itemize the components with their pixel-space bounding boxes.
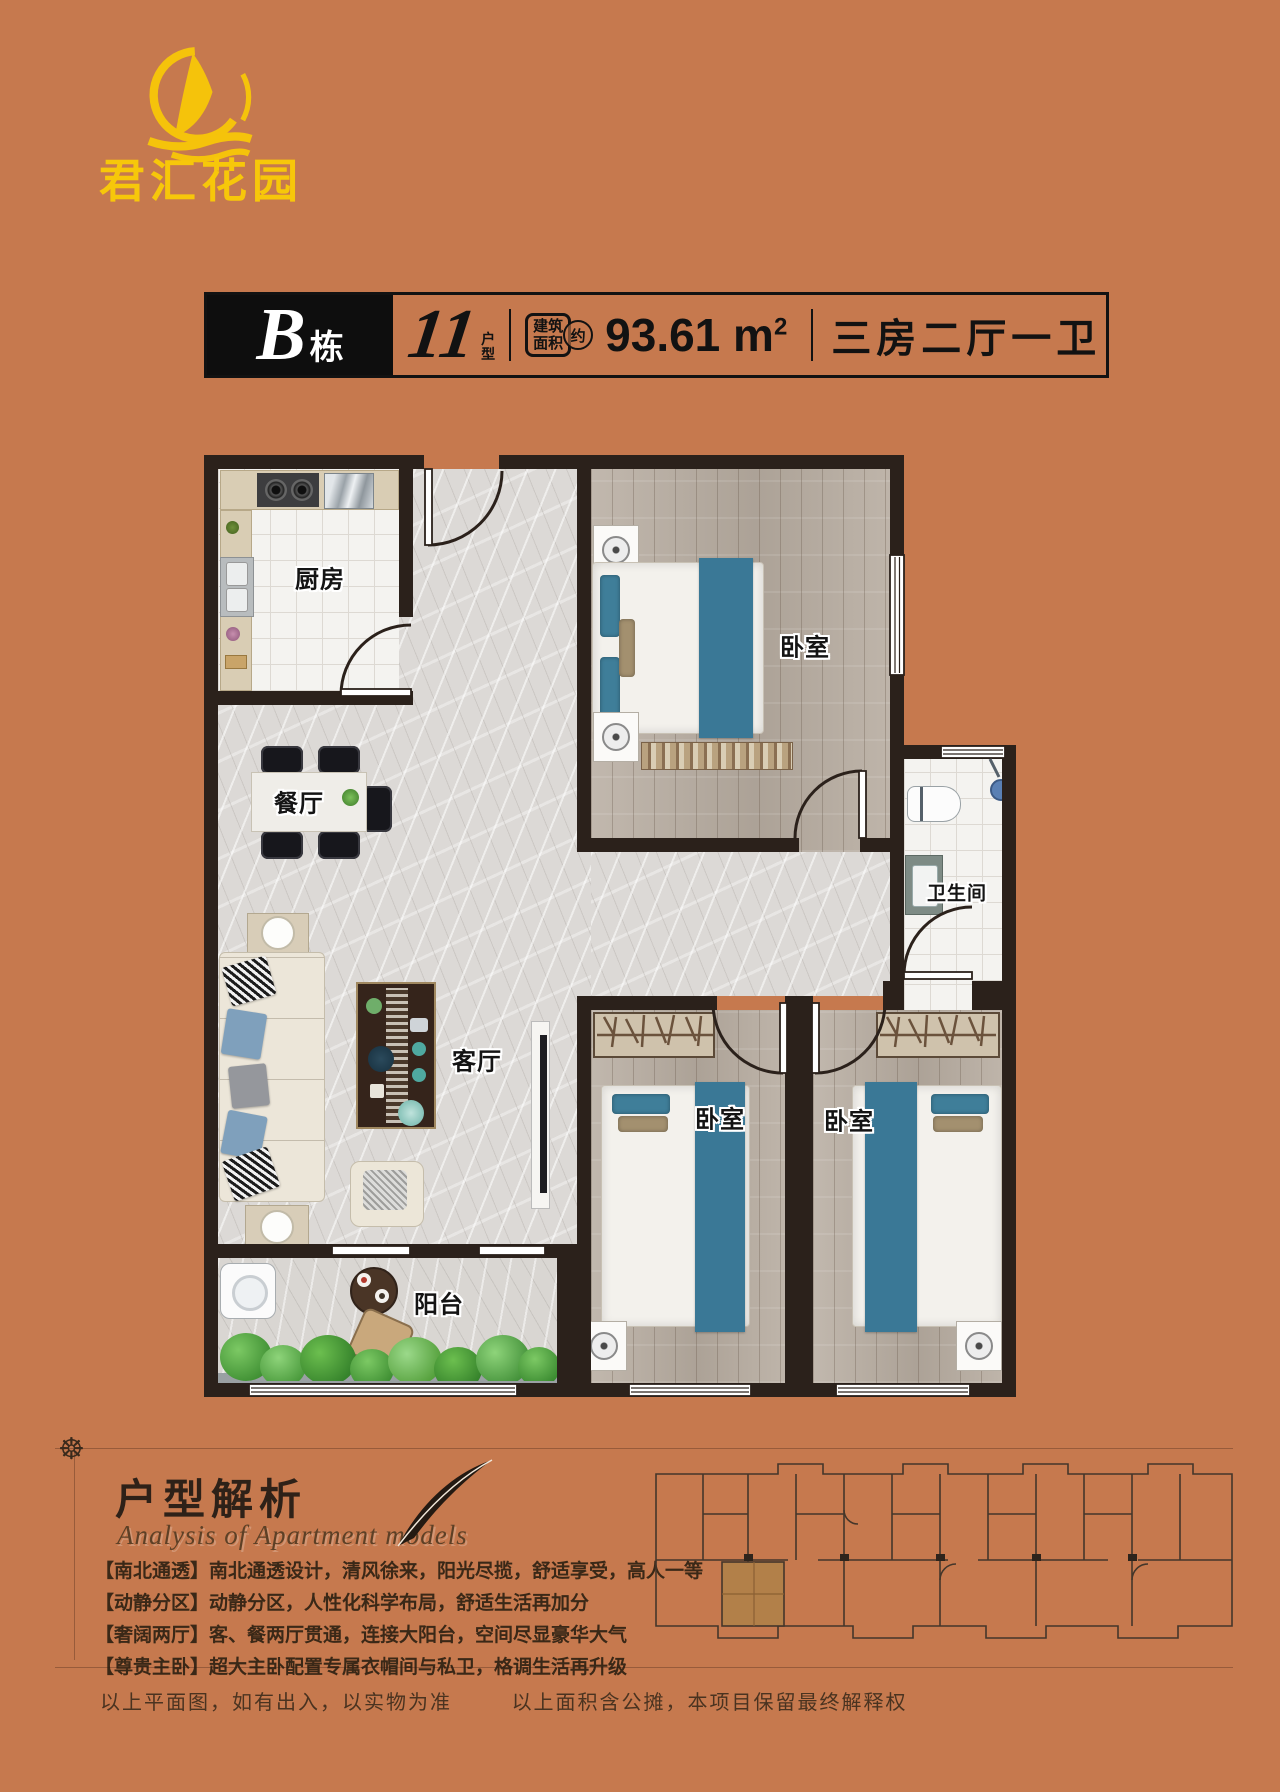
wall [1002,745,1016,1397]
wardrobe [876,1012,1000,1058]
tv-icon [540,1035,547,1193]
side-table [247,913,309,953]
stamp-line1: 建筑 [533,318,563,335]
wall [972,981,1016,1010]
toilet-icon [907,786,961,822]
wall [785,996,813,1383]
unit-word-bottom: 型 [481,347,495,362]
analysis-heading: 户型解析 [115,1466,307,1527]
sofa-pillow [221,1008,268,1060]
dining-chair [318,831,360,859]
analysis-bullet: 【南北通透】南北通透设计，清风徐来，阳光尽揽，舒适享受，高人一等 [95,1556,675,1588]
quill-icon [390,1458,500,1550]
footer-divider [55,1667,1233,1668]
footer-note-left: 以上平面图，如有出入，以实物为准 [100,1692,452,1714]
rug [641,742,793,770]
wall [860,838,904,852]
room-label-dining: 餐厅 [274,784,324,819]
area-value: 93.61 m2 [605,308,787,362]
kitchen-appliance [324,473,374,509]
footer-note-right: 以上面积含公摊，本项目保留最终解释权 [512,1692,908,1714]
dining-chair [261,746,303,774]
analysis-bullets: 【南北通透】南北通透设计，清风徐来，阳光尽揽，舒适享受，高人一等 【动静分区】动… [95,1556,675,1684]
wall [890,455,904,1010]
wall [890,745,1016,759]
building-letter: B [256,300,305,370]
dining-chair [318,746,360,774]
divider [811,309,813,361]
unit-number-group: 11 户 型 [409,304,495,366]
side-table [245,1205,309,1249]
floor-plan: 厨房 餐厅 客厅 卧室 卧室 卧室 卫生间 阳台 [204,455,1016,1397]
room-label-living: 客厅 [452,1042,502,1077]
area-number: 93.61 m [605,309,774,361]
highlighted-unit [722,1562,784,1626]
stove-icon [257,473,319,507]
room-label-bedroom-left: 卧室 [695,1100,745,1135]
area-stamp: 建筑 面积 约 [525,313,593,357]
approx-circle: 约 [563,320,593,350]
dining-chair [261,831,303,859]
wall [204,691,413,705]
title-bar: B 栋 11 户 型 建筑 面积 约 93.61 m2 三房二厅一卫 [204,292,1109,378]
wall [557,1244,591,1397]
wall [883,981,904,1010]
room-label-bedroom-top: 卧室 [780,628,830,663]
wall [204,455,424,469]
corridor-floor [591,852,890,996]
wall [499,455,904,469]
room-label-kitchen: 厨房 [295,560,345,595]
building-badge: B 栋 [207,295,393,375]
wall [577,838,799,852]
sofa-pillow [228,1063,270,1109]
building-word: 栋 [310,320,344,369]
unit-type-label: 户 型 [481,332,495,362]
divider-line-vertical [74,1448,75,1660]
nightstand [956,1321,1002,1371]
nightstand [593,712,639,762]
wall [399,455,413,617]
wall [204,1244,577,1258]
armchair [350,1161,424,1227]
kitchen-sink [220,557,254,617]
balcony-plants [218,1311,558,1381]
poster: 君汇花园 B 栋 11 户 型 建筑 面积 约 93.61 m2 三房二厅一卫 [0,0,1280,1792]
wall [577,455,591,852]
analysis-bullet: 【尊贵主卧】超大主卧配置专属衣帽间与私卫，格调生活再升级 [95,1652,675,1684]
kitchen-tray [225,655,247,669]
table-plant [342,789,359,806]
brand-name: 君汇花园 [76,145,326,211]
bed [592,562,764,734]
kitchen-plant [226,521,239,534]
stamp-line2: 面积 [533,335,563,352]
room-label-balcony: 阳台 [414,1285,464,1320]
building-key-plan [648,1450,1238,1655]
bathroom-door-floor [904,975,972,1011]
footer-disclaimer: 以上平面图，如有出入，以实物为准 以上面积含公摊，本项目保留最终解释权 [100,1686,960,1715]
analysis-bullet: 【动静分区】动静分区，人性化科学布局，舒适生活再加分 [95,1588,675,1620]
wardrobe [593,1012,715,1058]
divider-line [55,1448,1233,1449]
ship-wheel-icon: ☸ [58,1432,85,1467]
unit-word-top: 户 [481,332,495,347]
layout-text: 三房二厅一卫 [831,306,1101,364]
unit-number: 11 [405,304,480,366]
balcony-table [350,1267,398,1315]
room-label-bedroom-right: 卧室 [824,1102,874,1137]
brand-logo: 君汇花园 [70,45,330,215]
area-superscript: 2 [774,314,787,341]
bed [852,1085,1002,1327]
wall [577,996,717,1010]
room-label-bathroom: 卫生间 [927,879,987,906]
coffee-table [356,982,436,1129]
wall [204,1383,1016,1397]
kitchen-flowers [226,627,240,641]
analysis-bullet: 【奢阔两厅】客、餐两厅贯通，连接大阳台，空间尽显豪华大气 [95,1620,675,1652]
divider [509,309,511,361]
